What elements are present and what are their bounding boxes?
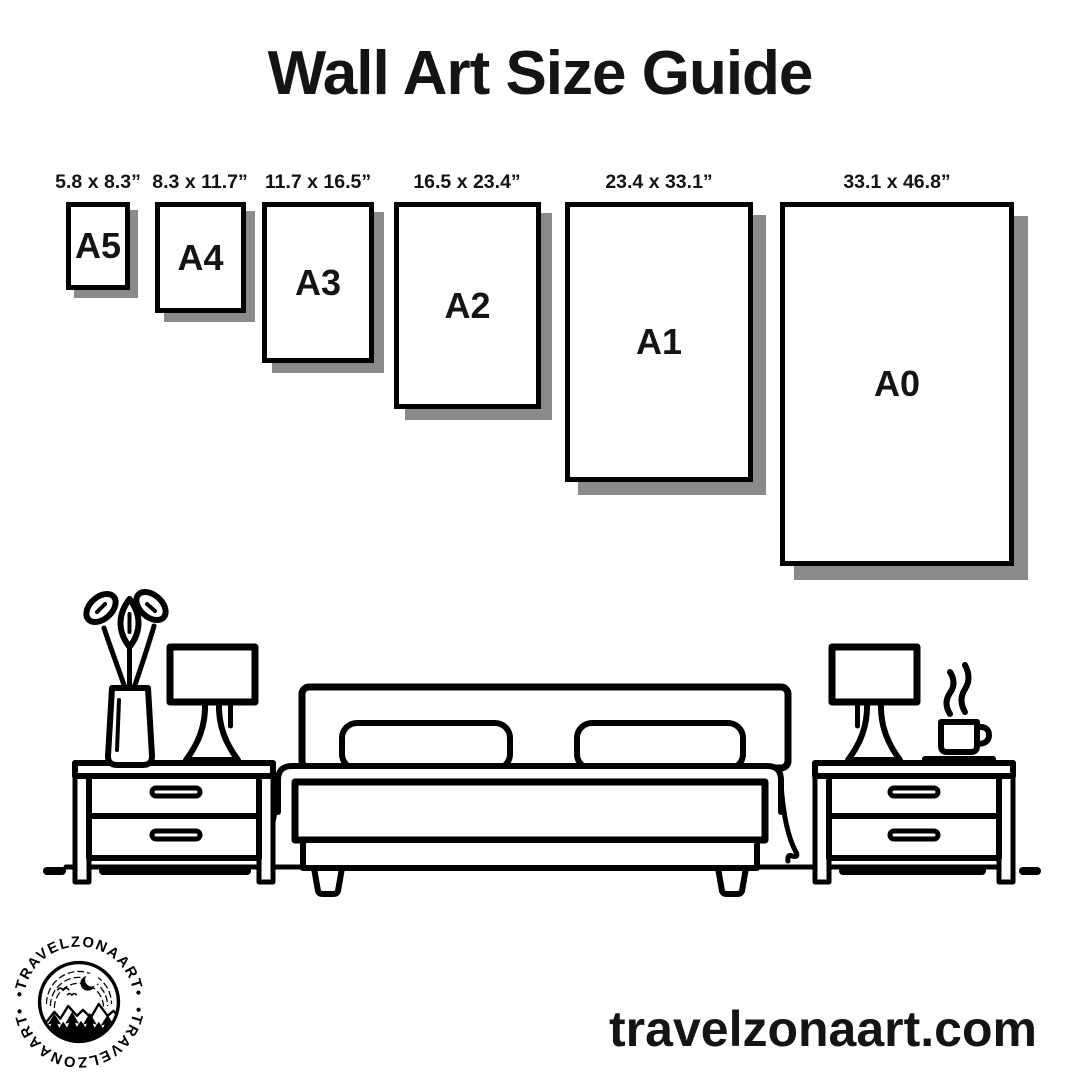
lamp-shade [832, 647, 917, 702]
size-name-a3: A3 [295, 262, 341, 304]
bed-foot-right [718, 868, 746, 894]
size-box-a0: A0 [780, 202, 1014, 566]
size-dimension-label-a5: 5.8 x 8.3” [55, 171, 141, 194]
size-name-a4: A4 [177, 237, 223, 279]
pillow-right [577, 723, 743, 769]
vase-highlight [117, 700, 119, 750]
crescent-moon-icon [80, 973, 98, 991]
steam-line [962, 665, 969, 712]
logo-sun-rays [46, 971, 111, 1007]
pillow-left [342, 723, 510, 769]
size-dimension-label-a4: 8.3 x 11.7” [152, 171, 247, 194]
drawer-handle [890, 831, 938, 839]
size-name-a5: A5 [75, 225, 121, 267]
size-name-a0: A0 [874, 363, 920, 405]
nightstand-left [75, 763, 273, 882]
size-box-a4: A4 [155, 202, 246, 313]
svg-text:•TRAVELZONAART•: •TRAVELZONAART• [12, 934, 146, 998]
size-box-a5: A5 [66, 202, 130, 290]
bed-foot-left [314, 868, 342, 894]
website-url: travelzonaart.com [600, 1000, 1046, 1058]
table-lamp-right [832, 647, 917, 760]
table-lamp-left [170, 647, 255, 760]
size-name-a2: A2 [444, 285, 490, 327]
brand-logo: •TRAVELZONAART• •TRAVELZONAART• [10, 933, 148, 1071]
size-dimension-label-a2: 16.5 x 23.4” [413, 171, 520, 194]
page-title: Wall Art Size Guide [0, 38, 1080, 109]
bedroom-illustration [40, 585, 1045, 905]
vase [108, 688, 152, 765]
drawer-handle [152, 788, 200, 796]
birds-icon [57, 988, 76, 995]
size-box-a1: A1 [565, 202, 753, 482]
bed-lower-frame [303, 840, 757, 868]
nightstand-right [815, 763, 1013, 882]
wall-art-size-guide-infographic: Wall Art Size Guide 5.8 x 8.3” 8.3 x 11.… [0, 0, 1080, 1080]
lamp-shade [170, 647, 255, 702]
bed-front-panel [295, 782, 765, 840]
blanket-drape-right [781, 784, 797, 861]
steam-line [947, 672, 954, 714]
size-box-a3: A3 [262, 202, 374, 363]
drawer-handle [890, 788, 938, 796]
double-bed [262, 687, 797, 894]
size-dimension-label-a0: 33.1 x 46.8” [843, 171, 950, 194]
size-dimension-label-a3: 11.7 x 16.5” [265, 171, 371, 194]
logo-ring-text-top: •TRAVELZONAART• [12, 934, 146, 998]
drawer-handle [152, 831, 200, 839]
coffee-cup-with-steam [925, 665, 993, 759]
cup-body [941, 722, 977, 752]
size-box-a2: A2 [394, 202, 541, 409]
size-dimension-label-a1: 23.4 x 33.1” [605, 171, 712, 194]
vase-with-flowers [81, 586, 171, 765]
size-name-a1: A1 [636, 321, 682, 363]
